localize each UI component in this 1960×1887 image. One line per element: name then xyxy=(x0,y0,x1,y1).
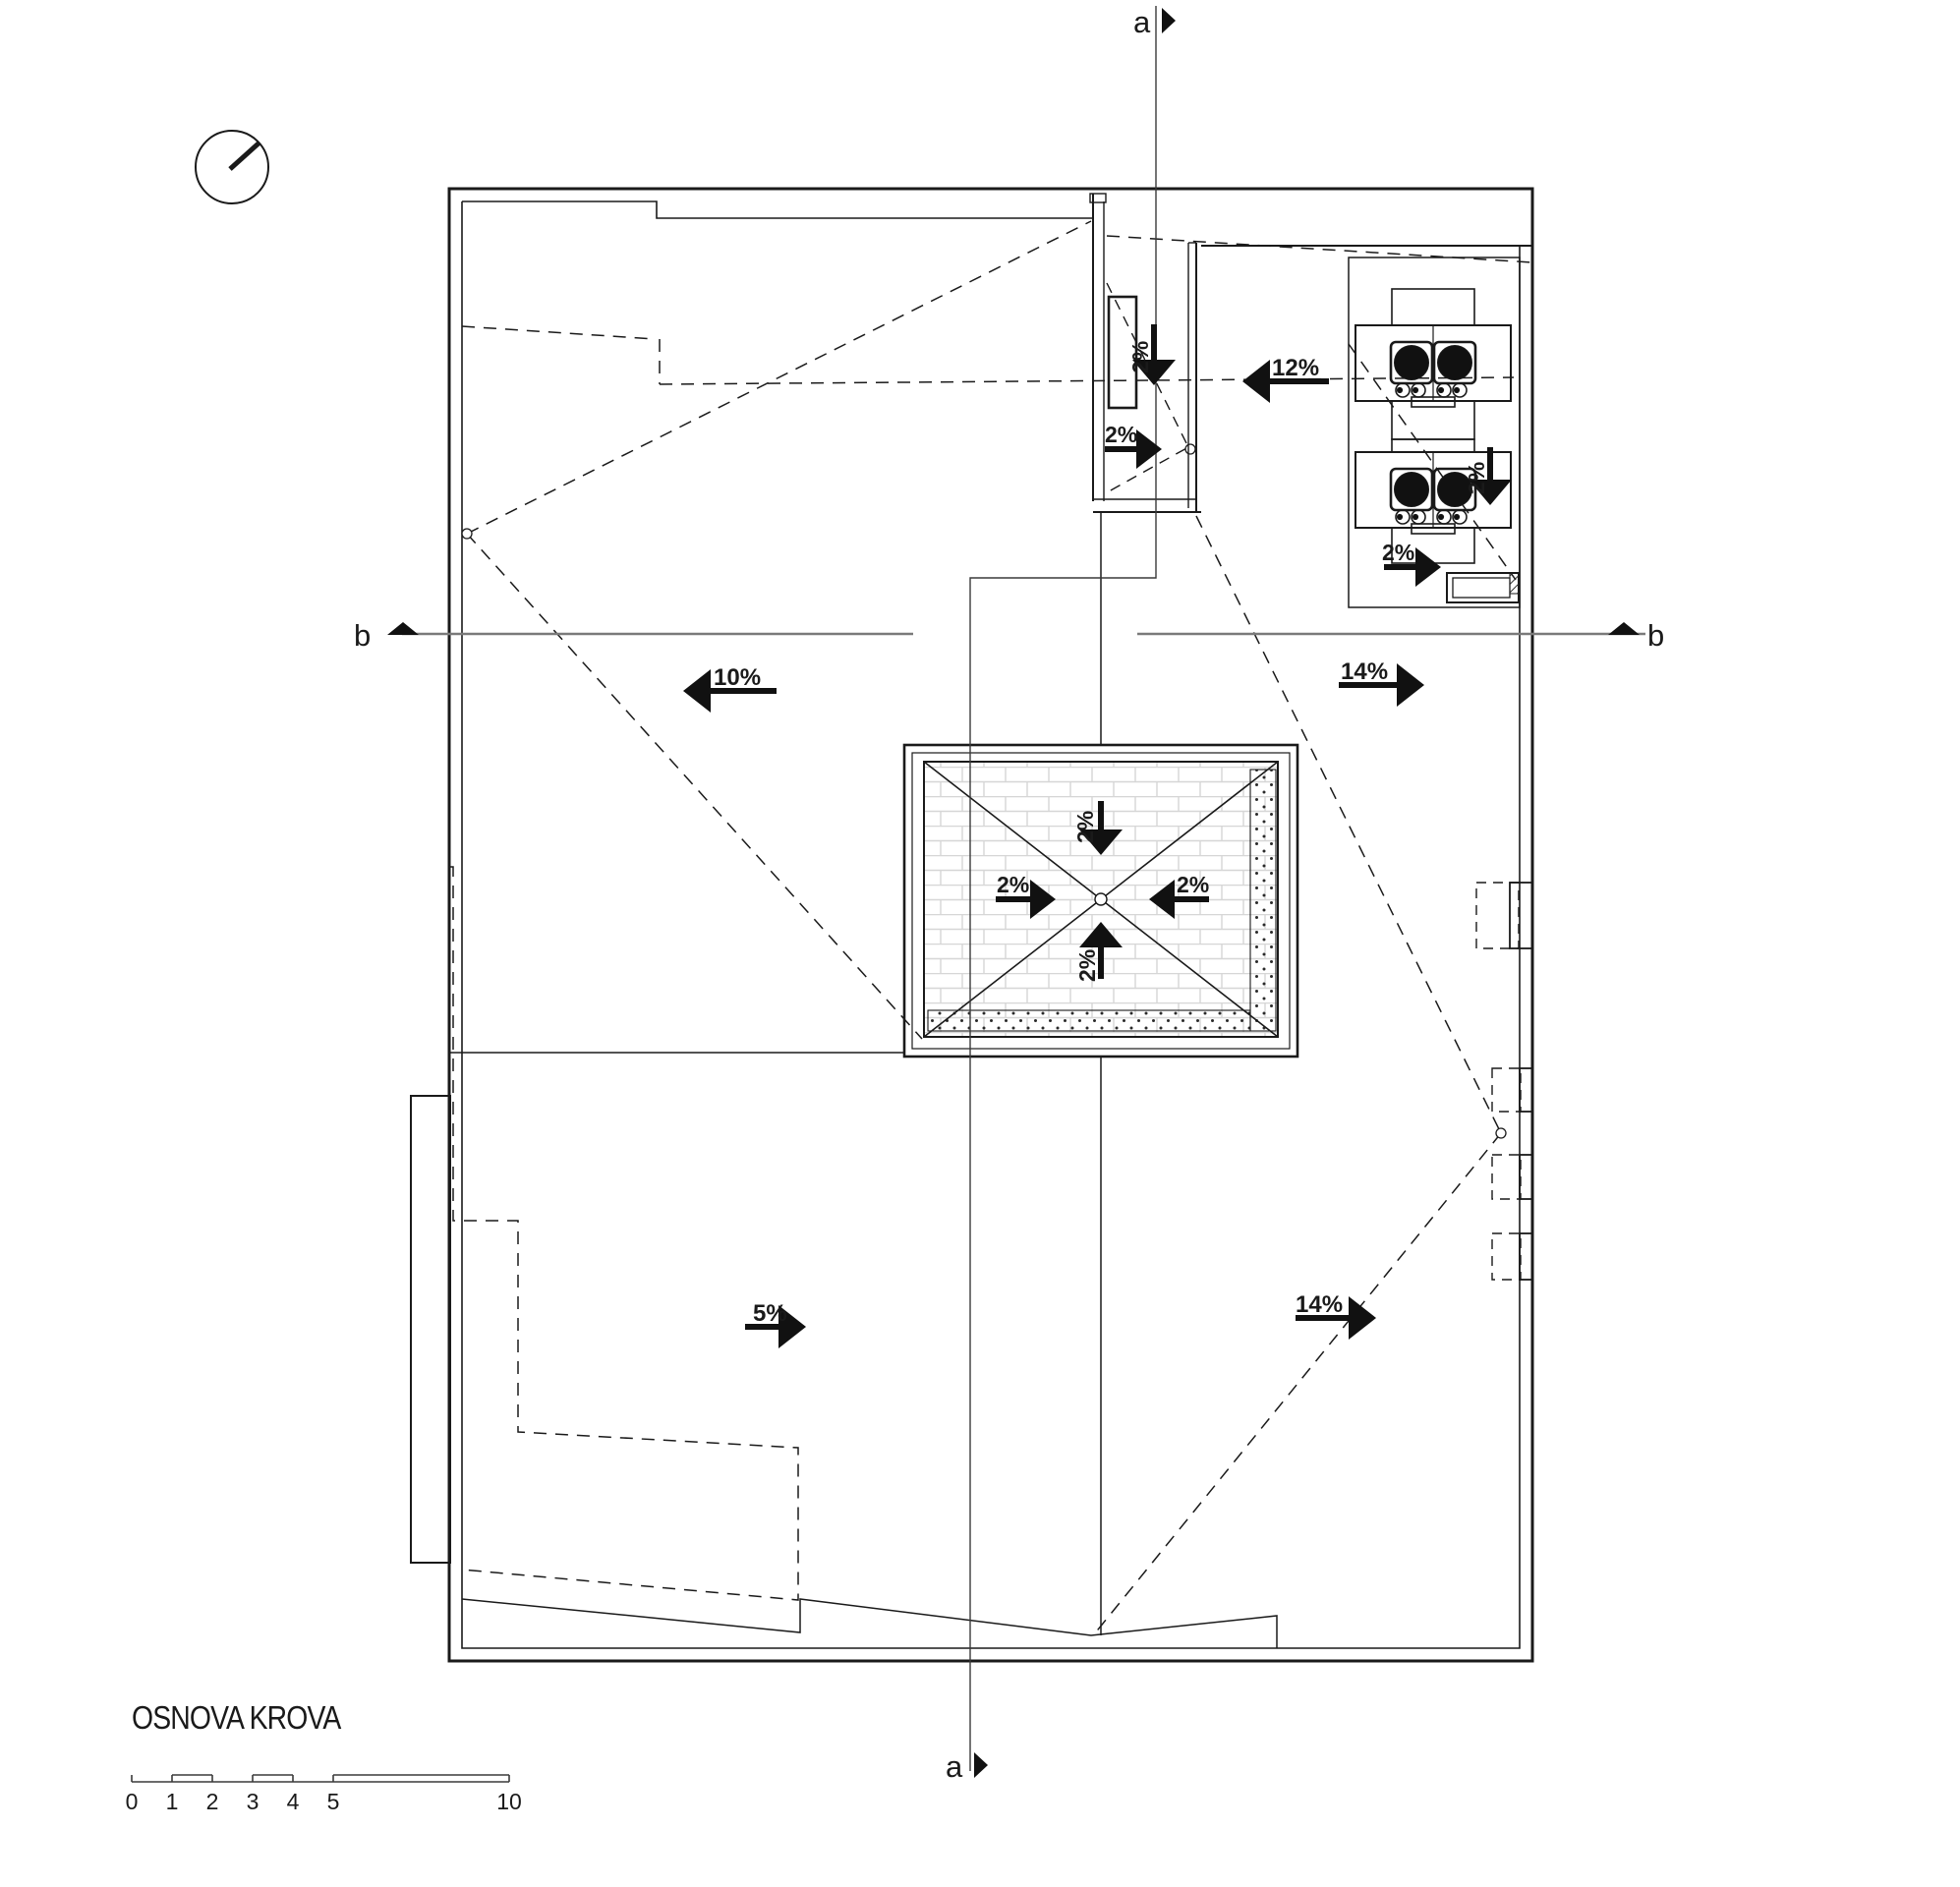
ridge-left-up xyxy=(467,221,1091,534)
slope-label: 2% xyxy=(1074,949,1100,982)
section-arrow-icon xyxy=(387,622,419,635)
scale-tick-label: 3 xyxy=(247,1789,259,1814)
scale-tick-label: 1 xyxy=(166,1789,179,1814)
section-label-b-right: b xyxy=(1647,618,1664,653)
roof-hatch xyxy=(1447,573,1519,602)
slope-arrow-14-lower-right: 14% xyxy=(1296,1291,1376,1340)
slope-label: 2% xyxy=(1105,422,1137,447)
slope-arrow-channel-down: 2% xyxy=(1127,324,1176,385)
section-line-b: b b xyxy=(354,618,1664,653)
roof-lines xyxy=(411,512,1277,1648)
roof-plan-drawing: a a b b 10% 12% 14% xyxy=(0,0,1960,1887)
section-label-b-left: b xyxy=(354,618,371,653)
fan-icon xyxy=(1395,473,1429,507)
slope-label: 2% xyxy=(1464,462,1489,494)
section-arrow-icon xyxy=(1162,8,1176,33)
hvac-area xyxy=(1349,257,1520,607)
hvac-unit-1 xyxy=(1355,289,1511,407)
slope-label: 2% xyxy=(1127,341,1153,373)
slope-arrows: 10% 12% 14% 14% 5% 2% xyxy=(683,324,1512,1348)
slope-arrow-5-right: 5% xyxy=(745,1300,806,1348)
north-indicator xyxy=(196,131,268,203)
skylight-drain xyxy=(1095,893,1107,905)
scale-tick-label: 2 xyxy=(206,1789,219,1814)
slope-label: 12% xyxy=(1272,355,1319,381)
lower-roof-hidden-edge xyxy=(450,867,798,1600)
title-block: OSNOVA KROVA xyxy=(132,1699,342,1737)
drawing-title: OSNOVA KROVA xyxy=(132,1699,342,1737)
valley-right-lower xyxy=(1094,1133,1501,1634)
slope-arrow-hvac-right: 2% xyxy=(1382,540,1441,587)
roof-plan-svg: a a b b 10% 12% 14% xyxy=(0,0,1960,1887)
slope-label: 5% xyxy=(753,1300,787,1327)
section-label-a-top: a xyxy=(1133,5,1151,39)
gutter-profile xyxy=(462,1599,1277,1648)
slope-arrow-10-left: 10% xyxy=(683,664,777,713)
fan-icon xyxy=(1438,346,1472,380)
ridge-left-down xyxy=(467,534,922,1039)
slope-label: 2% xyxy=(997,872,1029,897)
left-bay xyxy=(411,1096,450,1563)
slope-label: 14% xyxy=(1296,1291,1343,1318)
section-arrow-icon xyxy=(974,1752,988,1778)
slope-label: 2% xyxy=(1382,540,1414,565)
ridge-top-right xyxy=(1107,236,1532,262)
skylight xyxy=(904,745,1297,1057)
section-arrow-icon xyxy=(1608,622,1640,635)
scale-tick-label: 4 xyxy=(287,1789,300,1814)
slope-label: 14% xyxy=(1341,658,1388,685)
slope-label: 2% xyxy=(1072,811,1098,843)
skylight-stipple-band-bottom xyxy=(928,1010,1250,1031)
scale-tick-label: 5 xyxy=(327,1789,340,1814)
scale-bar: 0 1 2 3 4 5 10 xyxy=(126,1775,522,1814)
scale-tick-label: 0 xyxy=(126,1789,139,1814)
slope-arrow-channel-right: 2% xyxy=(1105,422,1162,469)
section-label-a-bottom: a xyxy=(946,1749,963,1784)
fan-icon xyxy=(1395,346,1429,380)
slope-label: 10% xyxy=(714,664,761,691)
slope-arrow-12-left: 12% xyxy=(1242,355,1329,403)
scale-tick-label: 10 xyxy=(496,1789,522,1814)
slope-arrow-14-upper-right: 14% xyxy=(1339,658,1424,707)
skylight-stipple-band-right xyxy=(1250,770,1276,1031)
slope-label: 2% xyxy=(1177,872,1209,897)
right-edge-openings xyxy=(1476,883,1532,1280)
